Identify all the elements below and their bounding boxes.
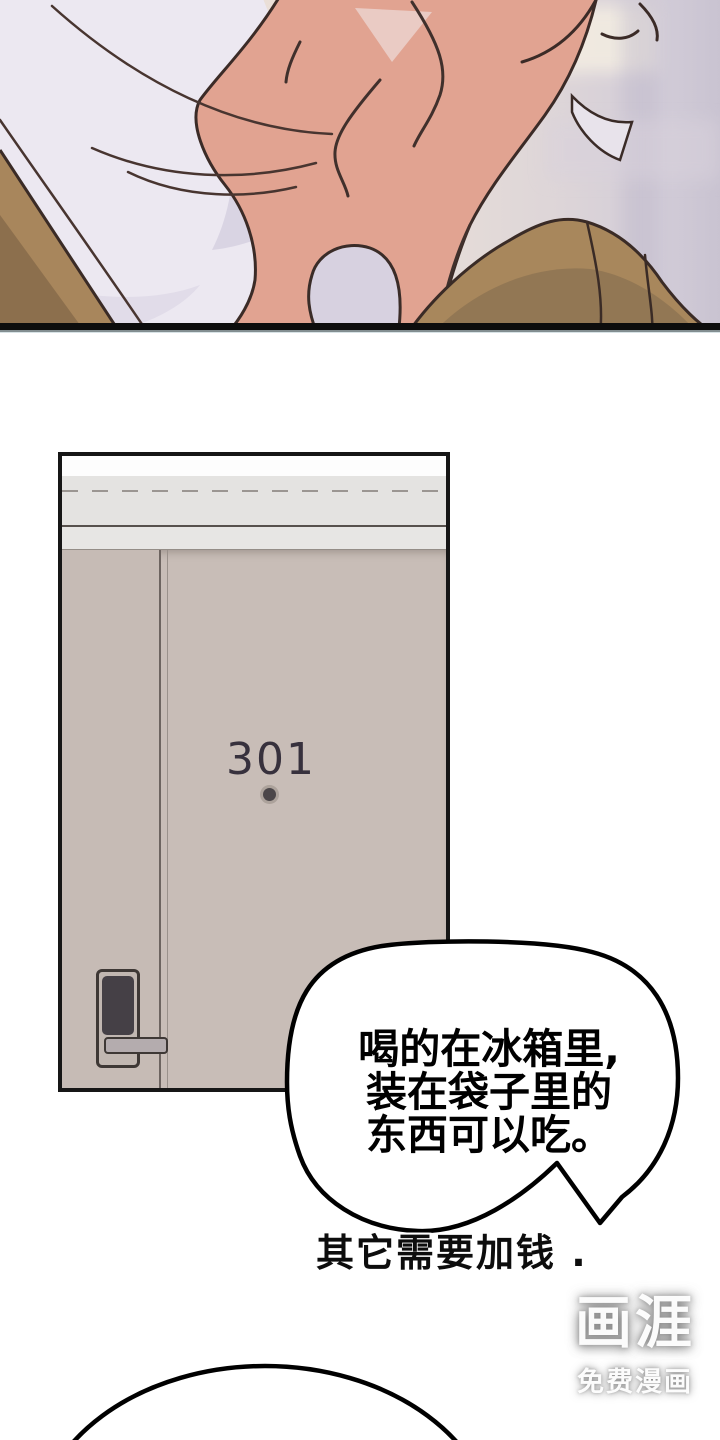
speech-line-3: 东西可以吃。 bbox=[308, 1114, 670, 1157]
peephole bbox=[263, 788, 276, 801]
speech-bubble-text: 喝的在冰箱里, 装在袋子里的 东西可以吃。 bbox=[308, 1028, 670, 1157]
door-handle bbox=[104, 1037, 168, 1054]
door-seam-line bbox=[167, 550, 168, 1088]
watermark-tagline: 免费漫画 bbox=[560, 1360, 710, 1399]
watermark-logo: 画涯 bbox=[560, 1292, 710, 1354]
caption-text: 其它需要加钱 . bbox=[316, 1222, 588, 1277]
door-face: 301 bbox=[62, 550, 446, 1088]
door-top-white-strip bbox=[62, 456, 446, 476]
speech-line-2: 装在袋子里的 bbox=[308, 1071, 670, 1114]
background-band-2 bbox=[545, 120, 720, 180]
comic-page: 301 喝的在冰箱里, 装在袋子里的 东西可以吃。 其它需要加钱 . 画涯 免费… bbox=[0, 0, 720, 1440]
door-header-dash-line bbox=[62, 490, 446, 492]
top-illustration-panel bbox=[0, 0, 720, 332]
next-speech-bubble bbox=[35, 1366, 495, 1440]
door-panel: 301 bbox=[58, 452, 450, 1092]
panel-shadow-line bbox=[0, 330, 720, 333]
watermark: 画涯 免费漫画 bbox=[560, 1292, 710, 1399]
door-header-band bbox=[62, 476, 446, 527]
top-panel-art bbox=[0, 0, 720, 332]
door-header-band-lower bbox=[62, 527, 446, 550]
door-lock-keypad bbox=[102, 976, 134, 1035]
collar-piece bbox=[309, 246, 401, 332]
room-number: 301 bbox=[121, 734, 421, 785]
speech-line-1: 喝的在冰箱里, bbox=[308, 1028, 670, 1071]
